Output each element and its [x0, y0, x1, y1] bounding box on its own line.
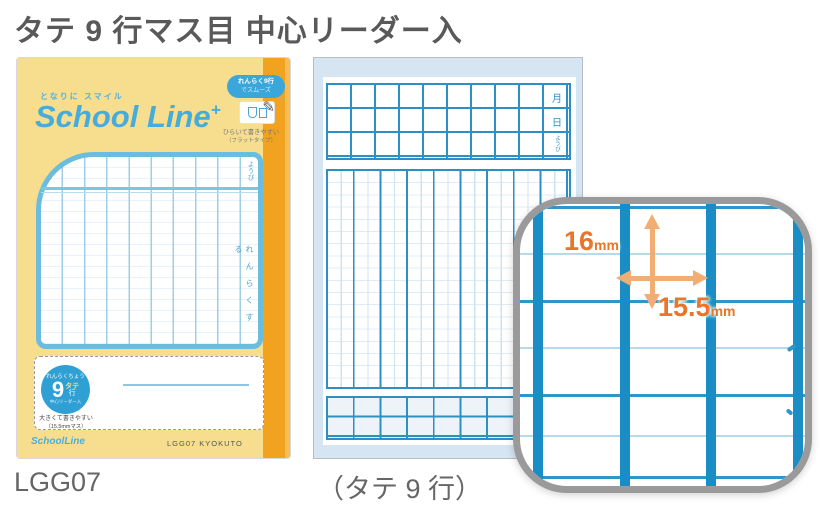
badge-arc-bottom: 中心リーダー入	[50, 400, 82, 405]
plate-caption-line2: （15.5mmマス）	[35, 424, 97, 432]
grid-row-line	[520, 476, 805, 479]
panel-label-youbi: ようび	[244, 161, 254, 181]
horizontal-dimension-unit: mm	[711, 303, 736, 319]
badge-number: 9	[52, 380, 64, 400]
center-leader-line	[520, 435, 805, 437]
arrow-head-right-icon	[693, 270, 708, 286]
vertical-dimension-label: 16mm	[564, 226, 619, 257]
grid-row-line	[520, 206, 805, 209]
grid-row-line	[520, 394, 805, 397]
plate-caption-line1: 大きくて書きやすい	[35, 415, 97, 424]
footer-brand-logo: SchoolLine	[31, 436, 85, 447]
brand-logo: School Line+	[35, 99, 221, 135]
notebook-cover: となりに スマイル School Line+ れんらく9行 でスムーズ ✎ ひら…	[16, 57, 291, 459]
pencil-icon: ✎	[262, 98, 275, 116]
header-label-day: 日	[552, 114, 562, 129]
plate-caption: 大きくて書きやすい （15.5mmマス）	[35, 415, 97, 432]
arrow-head-up-icon	[644, 214, 660, 229]
feature-caption-line1: ひらいて書きやすい	[205, 128, 297, 137]
grid-column-bar	[533, 204, 543, 486]
badge-units: タテ 行	[65, 383, 79, 397]
arrow-head-left-icon	[616, 270, 631, 286]
feature-caption-line2: （フラットタイプ）	[205, 137, 297, 145]
cover-grid-panel: ようび れんらくする	[36, 152, 263, 349]
feature-pill-line1: れんらく9行	[238, 78, 274, 87]
brand-logo-plus: +	[211, 101, 221, 120]
open-page-icon	[248, 107, 257, 118]
panel-header-rule	[41, 187, 258, 190]
header-label-month: 月	[552, 90, 562, 105]
grid-column-bar	[620, 204, 630, 486]
header-grid-block: 月 日 ようび	[326, 83, 571, 160]
horizontal-dimension-label: 15.5mm	[658, 292, 735, 323]
product-screenshot: タテ 9 行マス目 中心リーダー入 となりに スマイル School Line+…	[0, 0, 840, 512]
grid-zoom-detail: 16mm 15.5mm	[513, 197, 812, 493]
feature-pill-badge: れんらく9行 でスムーズ	[227, 75, 285, 98]
page-title: タテ 9 行マス目 中心リーダー入	[14, 6, 463, 50]
vertical-dimension-value: 16	[564, 226, 594, 256]
grid-column-bar	[706, 204, 716, 486]
panel-label-renraku: れんらくする	[233, 245, 255, 344]
feature-pill-line2: でスムーズ	[241, 87, 271, 95]
center-leader-line	[520, 253, 805, 255]
badge-middle: 9 タテ 行	[52, 380, 79, 400]
center-leader-line	[520, 347, 805, 349]
spec-circle-badge: れんらくちょう 9 タテ 行 中心リーダー入	[41, 365, 90, 414]
open-notebook-pencil-icon: ✎	[239, 101, 275, 124]
variant-caption: （タテ 9 行）	[317, 467, 482, 506]
badge-unit-tate: タテ	[65, 383, 79, 390]
panel-header-rule-thin	[41, 192, 258, 193]
name-writing-line	[123, 384, 249, 386]
product-code-caption: LGG07	[14, 467, 101, 498]
vertical-dimension-arrow	[650, 228, 655, 294]
header-label-weekday: ようび	[553, 135, 561, 152]
vertical-dimension-unit: mm	[594, 237, 619, 253]
horizontal-dimension-value: 15.5	[658, 292, 711, 322]
footer-maker-text: LGG07 KYOKUTO	[167, 439, 243, 448]
badge-unit-gyou: 行	[65, 390, 79, 397]
feature-caption: ひらいて書きやすい （フラットタイプ）	[205, 128, 297, 146]
horizontal-dimension-arrow	[630, 276, 694, 281]
brand-logo-text: School Line	[35, 99, 211, 134]
